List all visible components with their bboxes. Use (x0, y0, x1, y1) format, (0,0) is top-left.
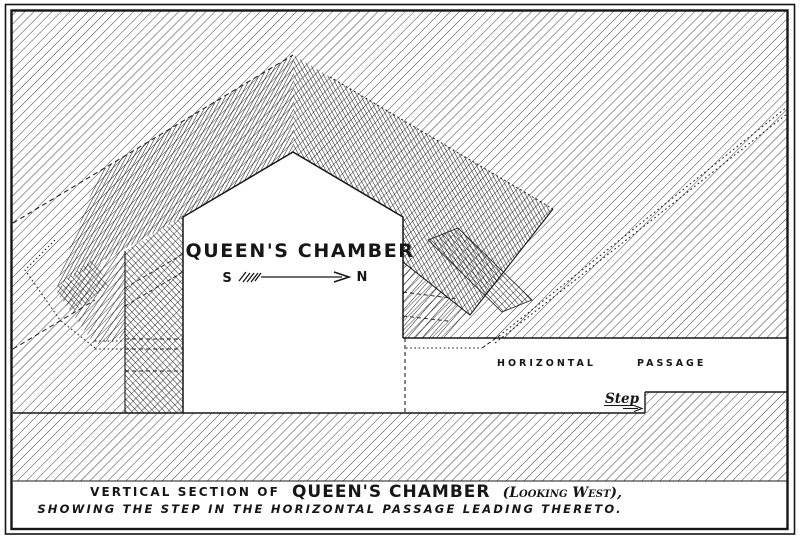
caption-line-2: SHOWING THE STEP IN THE HORIZONTAL PASSA… (0, 502, 717, 516)
compass-north-label: N (357, 270, 368, 285)
step-label: Step (605, 391, 640, 407)
section-drawing: QUEEN'S CHAMBER S N HORIZONTAL PASSAGE S… (0, 0, 800, 538)
engraving-plate: QUEEN'S CHAMBER S N HORIZONTAL PASSAGE S… (0, 0, 800, 538)
plate-caption: VERTICAL SECTION OF QUEEN'S CHAMBER (Loo… (13, 482, 787, 516)
caption-title: QUEEN'S CHAMBER (292, 482, 491, 502)
caption-lead: VERTICAL SECTION OF (90, 485, 280, 499)
caption-tail: (Looking West), (503, 485, 622, 501)
chamber-south-wall-masonry (125, 217, 183, 413)
caption-line-1: VERTICAL SECTION OF QUEEN'S CHAMBER (Loo… (0, 482, 743, 502)
passage-label-horizontal: HORIZONTAL (497, 358, 596, 369)
compass-south-label: S (222, 271, 231, 286)
passage-label-passage: PASSAGE (637, 358, 706, 369)
chamber-label: QUEEN'S CHAMBER (185, 240, 414, 262)
